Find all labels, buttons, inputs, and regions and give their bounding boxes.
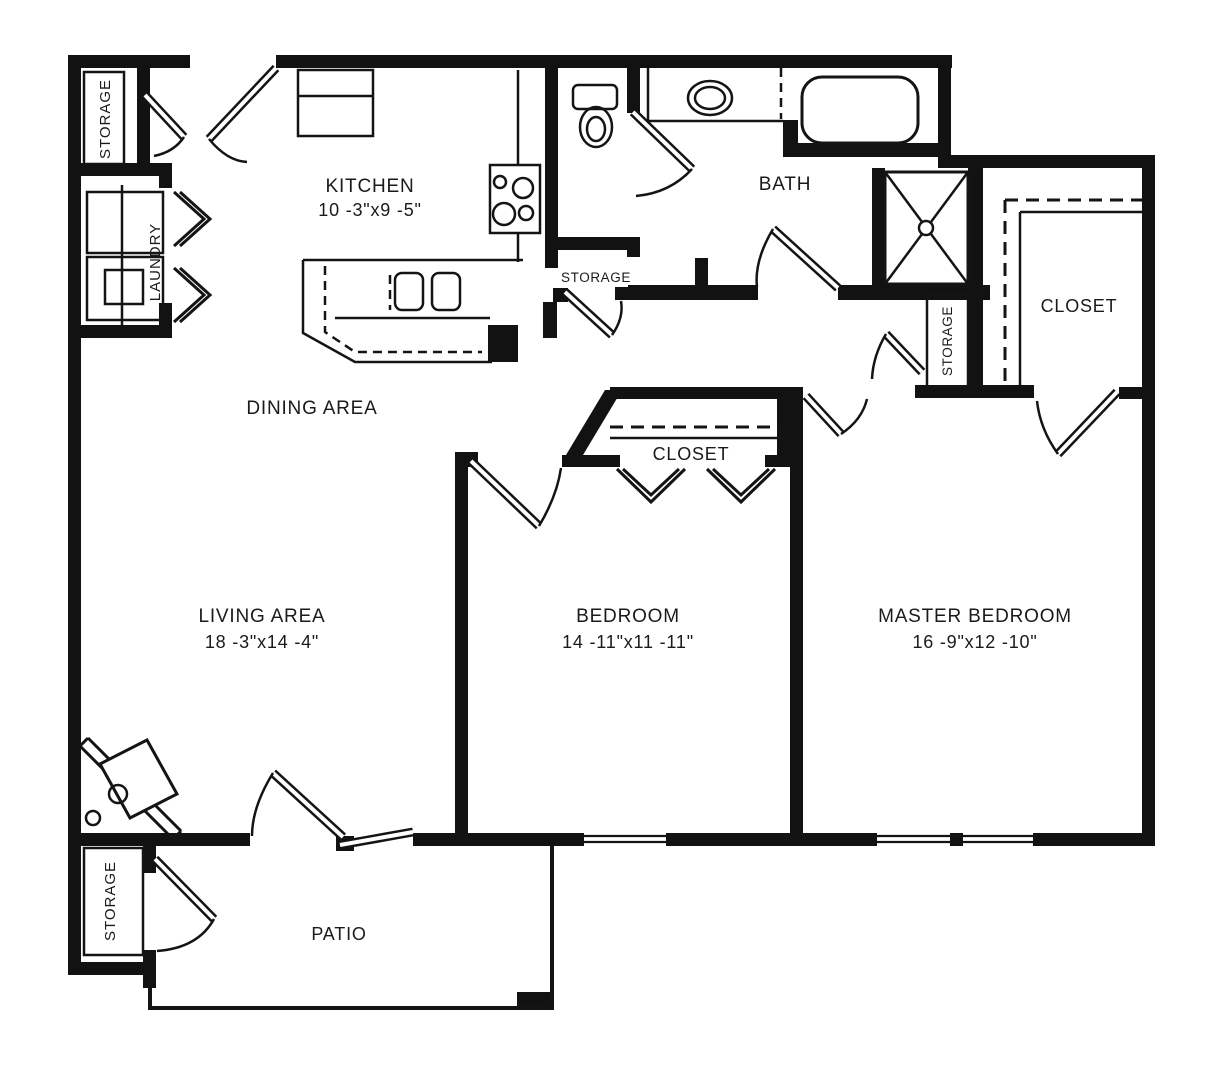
sink-basin bbox=[395, 273, 423, 310]
corner-fireplace bbox=[80, 738, 181, 839]
bath-door bbox=[757, 229, 838, 288]
refrigerator bbox=[298, 70, 373, 136]
storage-entry-label: STORAGE bbox=[97, 79, 114, 159]
living-area-label: LIVING AREA bbox=[198, 606, 325, 627]
patio-storage-door bbox=[155, 859, 214, 951]
master-bedroom-dims: 16 -9"x12 -10" bbox=[912, 632, 1037, 652]
stove bbox=[490, 165, 540, 233]
master-closet-door bbox=[1037, 392, 1117, 454]
floor-plan: KITCHEN 10 -3"x9 -5" DINING AREA BATH LI… bbox=[0, 0, 1230, 1080]
storage-master-label: STORAGE bbox=[940, 306, 955, 376]
patio-door bbox=[252, 773, 413, 845]
laundry-label: LAUNDRY bbox=[147, 223, 164, 301]
patio-label: PATIO bbox=[311, 924, 366, 944]
sink-basin bbox=[432, 273, 460, 310]
toilet-room-door bbox=[633, 112, 692, 196]
living-area-dims: 18 -3"x14 -4" bbox=[205, 632, 319, 652]
storage-patio-label: STORAGE bbox=[102, 861, 119, 941]
bathtub bbox=[802, 77, 918, 143]
bath-storage-door bbox=[565, 292, 622, 335]
laundry-bifold-doors bbox=[174, 192, 210, 322]
bedroom-door bbox=[471, 461, 561, 526]
vanity-sink bbox=[648, 68, 783, 121]
bedroom-dims: 14 -11"x11 -11" bbox=[562, 632, 694, 652]
master-closet-shelves bbox=[1005, 200, 1142, 385]
master-closet-label: CLOSET bbox=[1041, 296, 1118, 316]
floor-plan-drawing: KITCHEN 10 -3"x9 -5" DINING AREA BATH LI… bbox=[0, 0, 1230, 1080]
toilet bbox=[573, 85, 617, 147]
kitchen-label: KITCHEN bbox=[326, 176, 415, 197]
bedroom-closet-bifold-doors bbox=[617, 469, 775, 502]
bedroom-closet-label: CLOSET bbox=[653, 444, 730, 464]
kitchen-dims: 10 -3"x9 -5" bbox=[318, 200, 421, 220]
walls bbox=[68, 55, 1155, 1010]
entry-storage-door bbox=[145, 95, 184, 156]
bedroom-label: BEDROOM bbox=[576, 606, 680, 627]
master-bedroom-door bbox=[806, 396, 867, 434]
bath-label: BATH bbox=[759, 174, 811, 195]
master-storage-door bbox=[872, 334, 922, 379]
entry-door bbox=[209, 68, 276, 162]
shower bbox=[885, 172, 968, 284]
storage-bath-label: STORAGE bbox=[561, 270, 631, 285]
master-bedroom-label: MASTER BEDROOM bbox=[878, 606, 1072, 627]
bedroom-closet-shelf bbox=[610, 427, 783, 438]
dining-area-label: DINING AREA bbox=[246, 398, 377, 419]
